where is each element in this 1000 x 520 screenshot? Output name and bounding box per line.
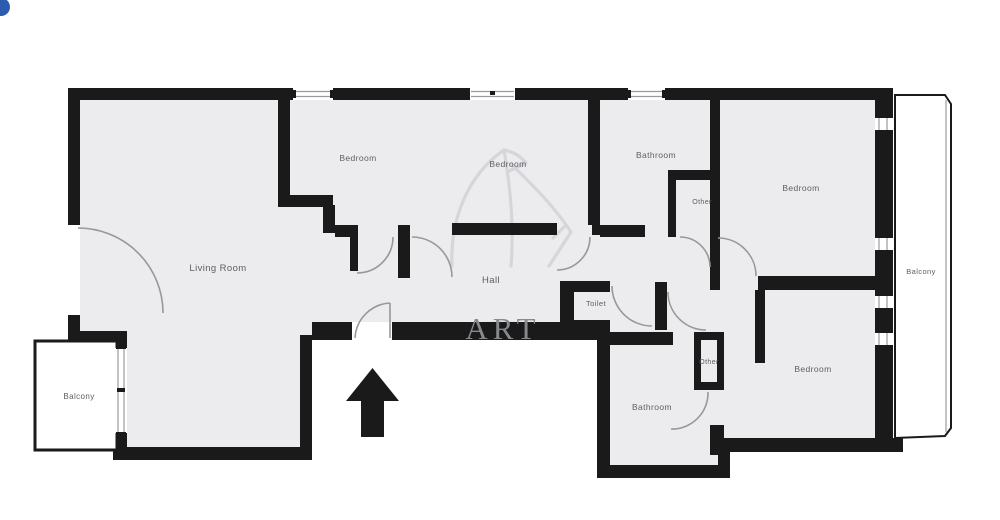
label-bedroom-top-middle: Bedroom xyxy=(489,159,526,169)
window-right-4 xyxy=(875,333,893,345)
label-bedroom-bottom-right: Bedroom xyxy=(794,364,831,374)
label-bathroom-top: Bathroom xyxy=(636,150,676,160)
label-hall: Hall xyxy=(482,275,500,286)
window-right-2 xyxy=(875,238,893,250)
label-bedroom-top-left: Bedroom xyxy=(339,153,376,163)
label-balcony-right: Balcony xyxy=(906,267,935,276)
window-top-3 xyxy=(628,88,665,100)
label-living-room: Living Room xyxy=(189,263,246,274)
floor-plan-canvas: Living Room Bedroom Bedroom Bathroom Oth… xyxy=(0,0,1000,520)
label-balcony-left: Balcony xyxy=(63,392,94,401)
label-bathroom-bottom: Bathroom xyxy=(632,402,672,412)
window-right-3 xyxy=(875,296,893,308)
watermark-text: ART xyxy=(465,311,540,346)
floor-plan-page: Living Room Bedroom Bedroom Bathroom Oth… xyxy=(0,0,1000,520)
window-balcony-left xyxy=(115,346,127,435)
window-top-2 xyxy=(470,88,515,100)
corner-blue-dot-icon xyxy=(0,0,10,16)
label-other-top: Other xyxy=(692,199,712,206)
label-bedroom-right: Bedroom xyxy=(782,183,819,193)
window-right-1 xyxy=(875,118,893,130)
label-toilet: Toilet xyxy=(586,299,606,308)
left-door-opening xyxy=(68,225,80,315)
entrance-arrow-icon xyxy=(346,368,399,437)
window-top-1 xyxy=(293,88,333,100)
label-other-bottom: Other xyxy=(699,359,719,366)
